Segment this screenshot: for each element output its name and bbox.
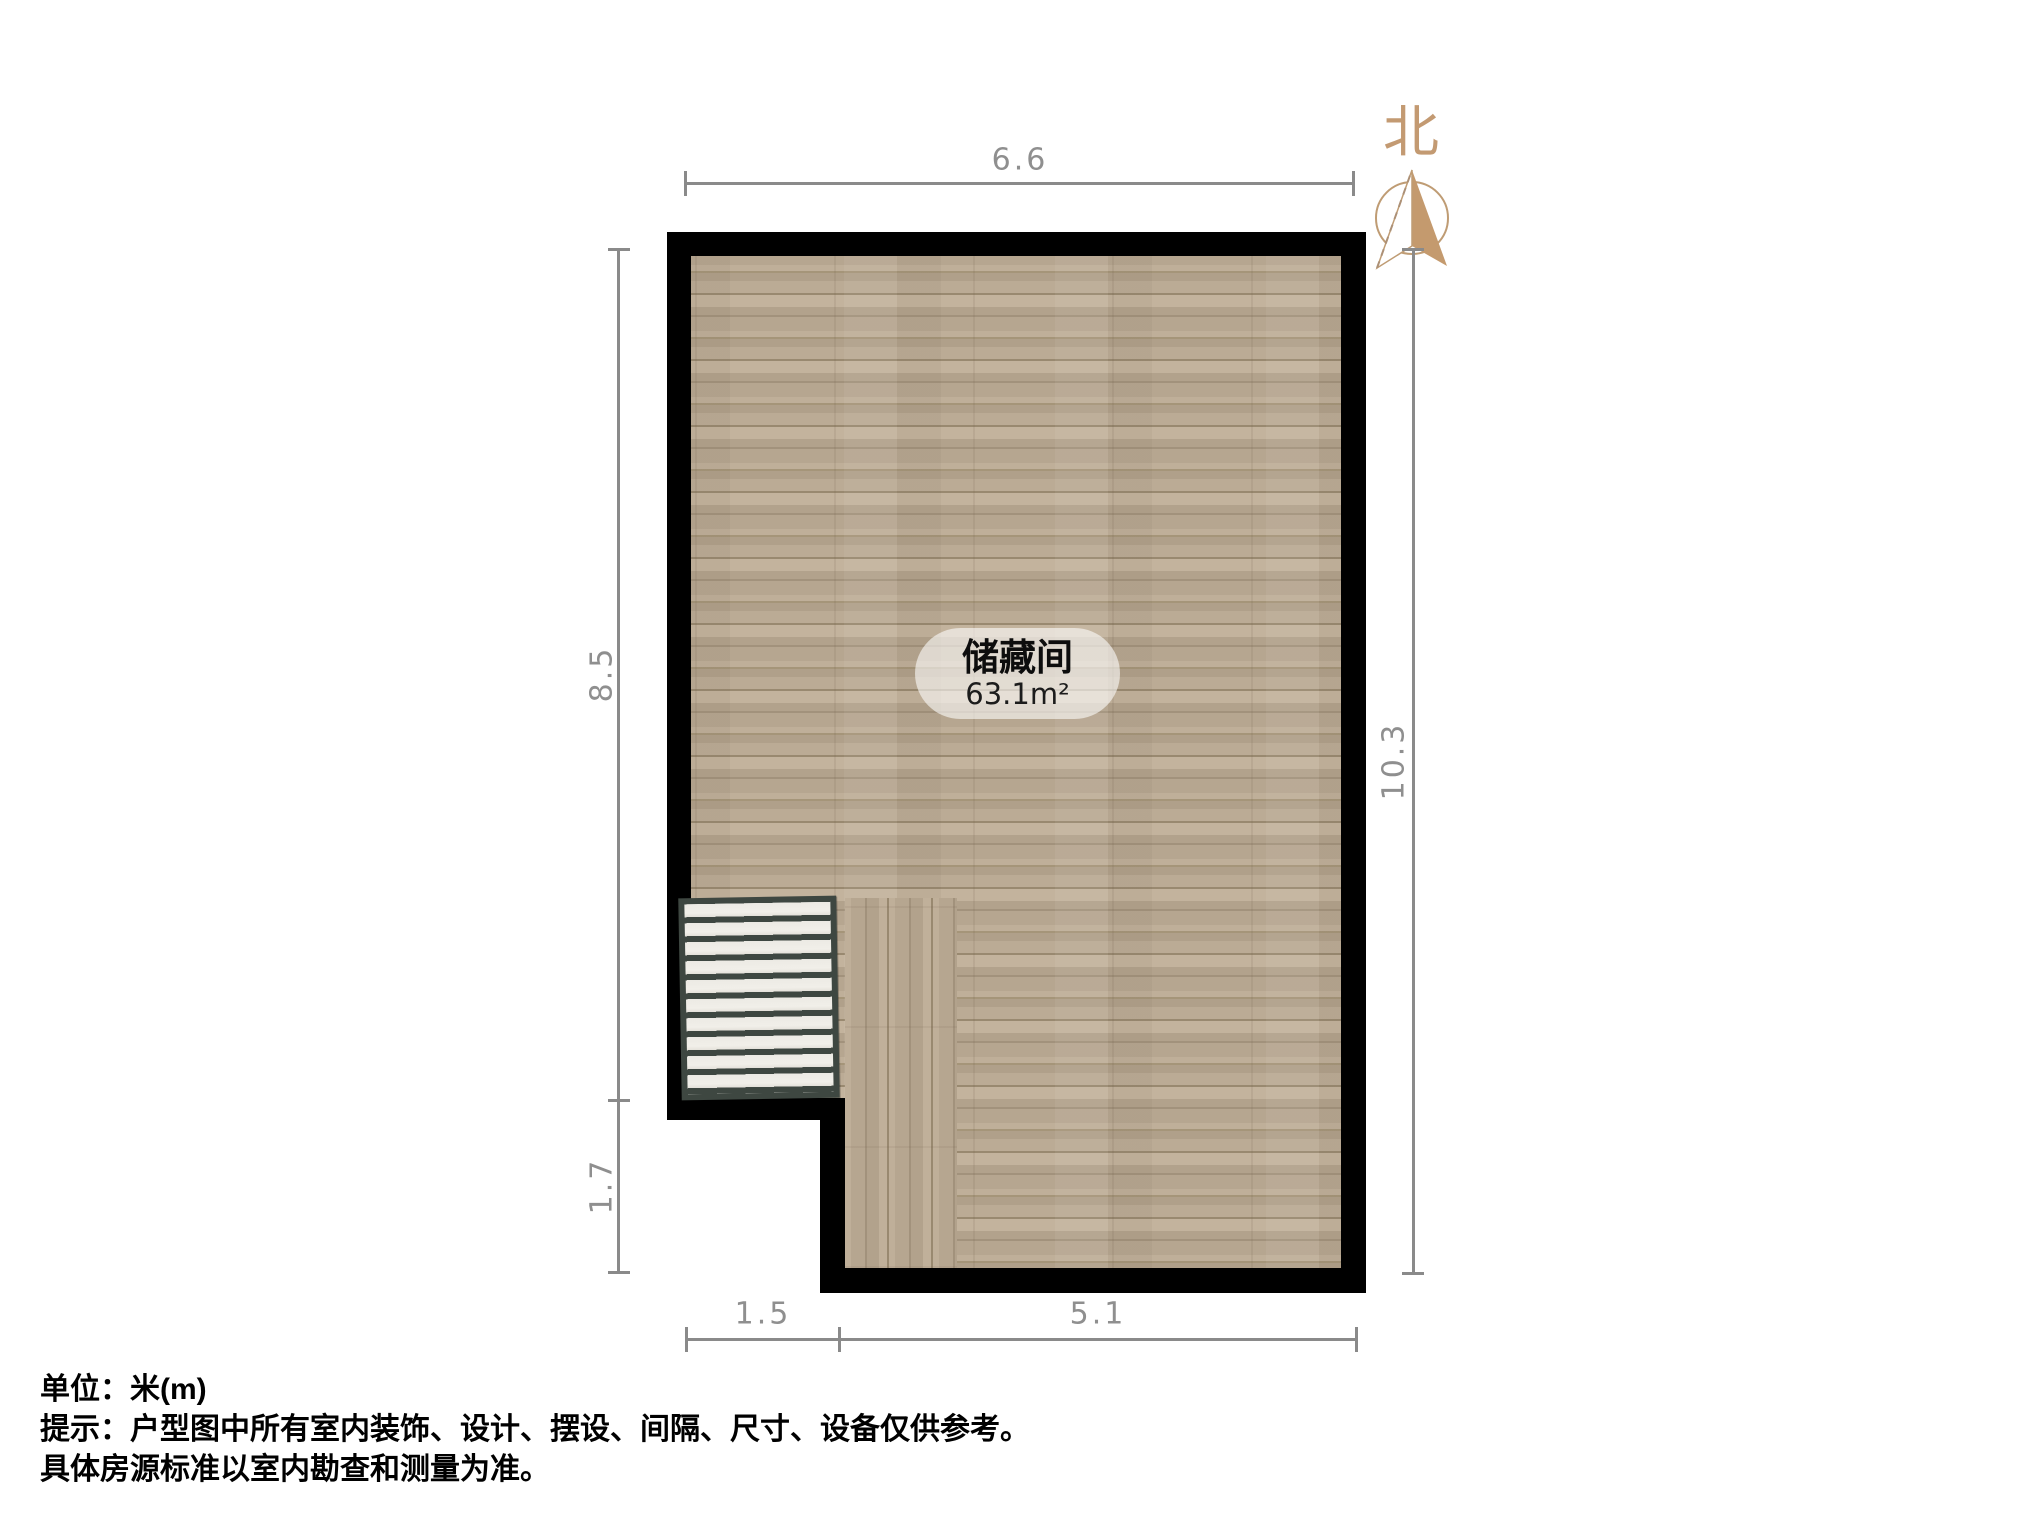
dim-tick-left-top (608, 248, 630, 251)
dim-tick-left-bottom (608, 1271, 630, 1274)
room-area: 63.1m² (965, 678, 1069, 710)
dim-label-bottom-left: 1.5 (735, 1297, 792, 1332)
dim-tick-top-left (684, 171, 687, 196)
dim-label-left-upper: 8.5 (585, 646, 620, 703)
dim-tick-bottom-mid (838, 1327, 841, 1352)
north-label: 北 (1383, 88, 1439, 169)
room-label: 储藏间 63.1m² (915, 628, 1120, 719)
room-floor (0, 0, 2033, 1525)
dim-line-bottom (687, 1338, 1357, 1341)
dim-line-right (1412, 249, 1415, 1274)
footer-disclaimer-line1: 提示：户型图中所有室内装饰、设计、摆设、间隔、尺寸、设备仅供参考。 (40, 1410, 1030, 1450)
floor-vertical-plank-strip (845, 898, 957, 1268)
stairs (678, 896, 840, 1101)
dim-tick-top-right (1352, 171, 1355, 196)
dim-tick-bottom-right (1355, 1327, 1358, 1352)
footer-units-line: 单位：米(m) (40, 1370, 1030, 1410)
dim-tick-right-bottom (1402, 1272, 1424, 1275)
dim-label-bottom-right: 5.1 (1070, 1297, 1127, 1332)
stair-treads (684, 902, 833, 1095)
dim-tick-right-top (1402, 248, 1424, 251)
footer-disclaimer-line2: 具体房源标准以室内勘查和测量为准。 (40, 1450, 1030, 1490)
dim-label-top: 6.6 (992, 143, 1049, 178)
dim-label-right: 10.3 (1377, 722, 1412, 801)
dim-tick-bottom-left (685, 1327, 688, 1352)
dim-tick-left-mid (608, 1099, 630, 1102)
dim-line-left (617, 249, 620, 1273)
footer-notes: 单位：米(m) 提示：户型图中所有室内装饰、设计、摆设、间隔、尺寸、设备仅供参考… (40, 1370, 1030, 1490)
dim-line-top (686, 182, 1354, 185)
dim-label-left-lower: 1.7 (585, 1158, 620, 1215)
room-name: 储藏间 (962, 638, 1073, 678)
